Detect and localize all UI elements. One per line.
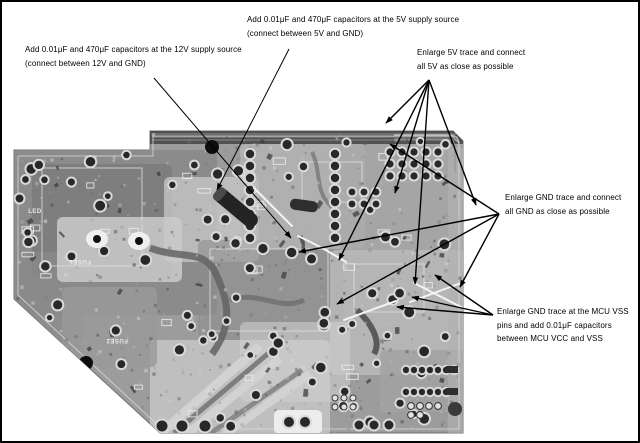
annotation-line: all GND as close as possible (505, 205, 621, 219)
svg-text:FUSE1: FUSE1 (69, 258, 91, 264)
annotation-line: between MCU VCC and VSS (497, 332, 629, 346)
annotation-line: (connect between 12V and GND) (25, 57, 242, 71)
annotation-5v-capacitors: Add 0.01μF and 470μF capacitors at the 5… (247, 13, 459, 40)
figure-canvas: FUSE1FUSE2LED Add 0.01μF and 470μF capac… (0, 0, 640, 443)
annotation-line: Enlarge GND trace at the MCU VSS (497, 305, 629, 319)
annotation-line: Enlarge GND trace and connect (505, 191, 621, 205)
annotation-enlarge-gnd-trace: Enlarge GND trace and connect all GND as… (505, 191, 621, 218)
annotation-line: all 5V as close as possible (417, 60, 525, 74)
svg-text:LED: LED (28, 209, 42, 215)
annotation-line: Add 0.01μF and 470μF capacitors at the 5… (247, 13, 459, 27)
annotation-line: pins and add 0.01μF capacitors (497, 319, 629, 333)
annotation-enlarge-5v-trace: Enlarge 5V trace and connect all 5V as c… (417, 46, 525, 73)
annotation-line: Add 0.01μF and 470μF capacitors at the 1… (25, 43, 242, 57)
annotation-line: Enlarge 5V trace and connect (417, 46, 525, 60)
annotation-12v-capacitors: Add 0.01μF and 470μF capacitors at the 1… (25, 43, 242, 70)
annotation-arrows (154, 49, 499, 315)
svg-text:FUSE2: FUSE2 (106, 337, 128, 343)
annotation-mcu-vss: Enlarge GND trace at the MCU VSS pins an… (497, 305, 629, 346)
annotation-line: (connect between 5V and GND) (247, 27, 459, 41)
